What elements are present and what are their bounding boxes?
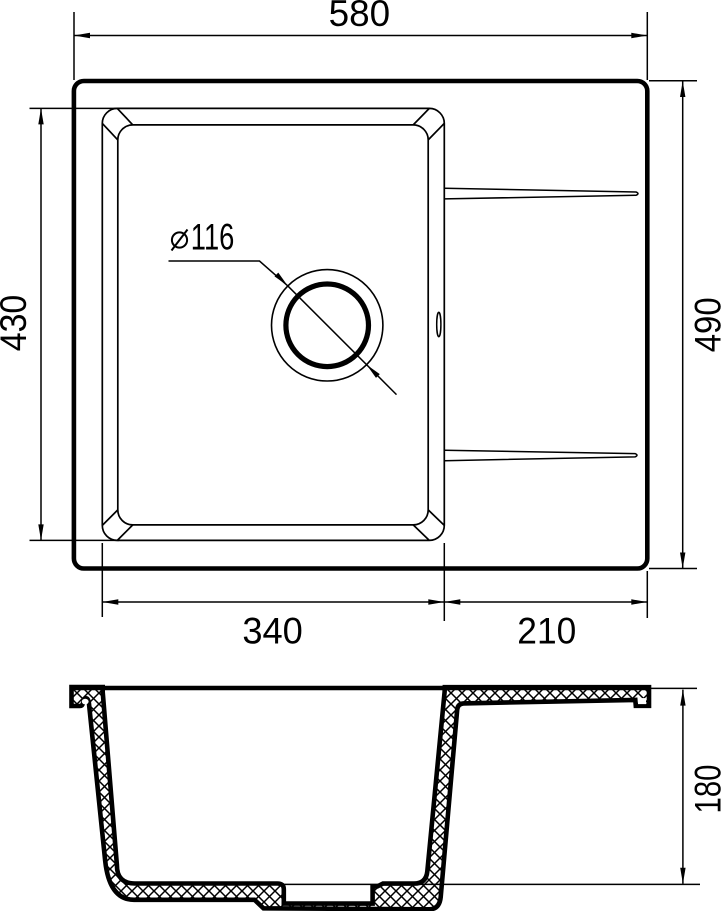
svg-text:116: 116	[191, 216, 235, 258]
svg-text:580: 580	[329, 0, 391, 34]
svg-text:340: 340	[242, 609, 303, 651]
svg-text:210: 210	[517, 609, 576, 651]
svg-text:180: 180	[687, 765, 722, 814]
svg-text:430: 430	[0, 295, 34, 352]
svg-text:490: 490	[686, 297, 722, 352]
